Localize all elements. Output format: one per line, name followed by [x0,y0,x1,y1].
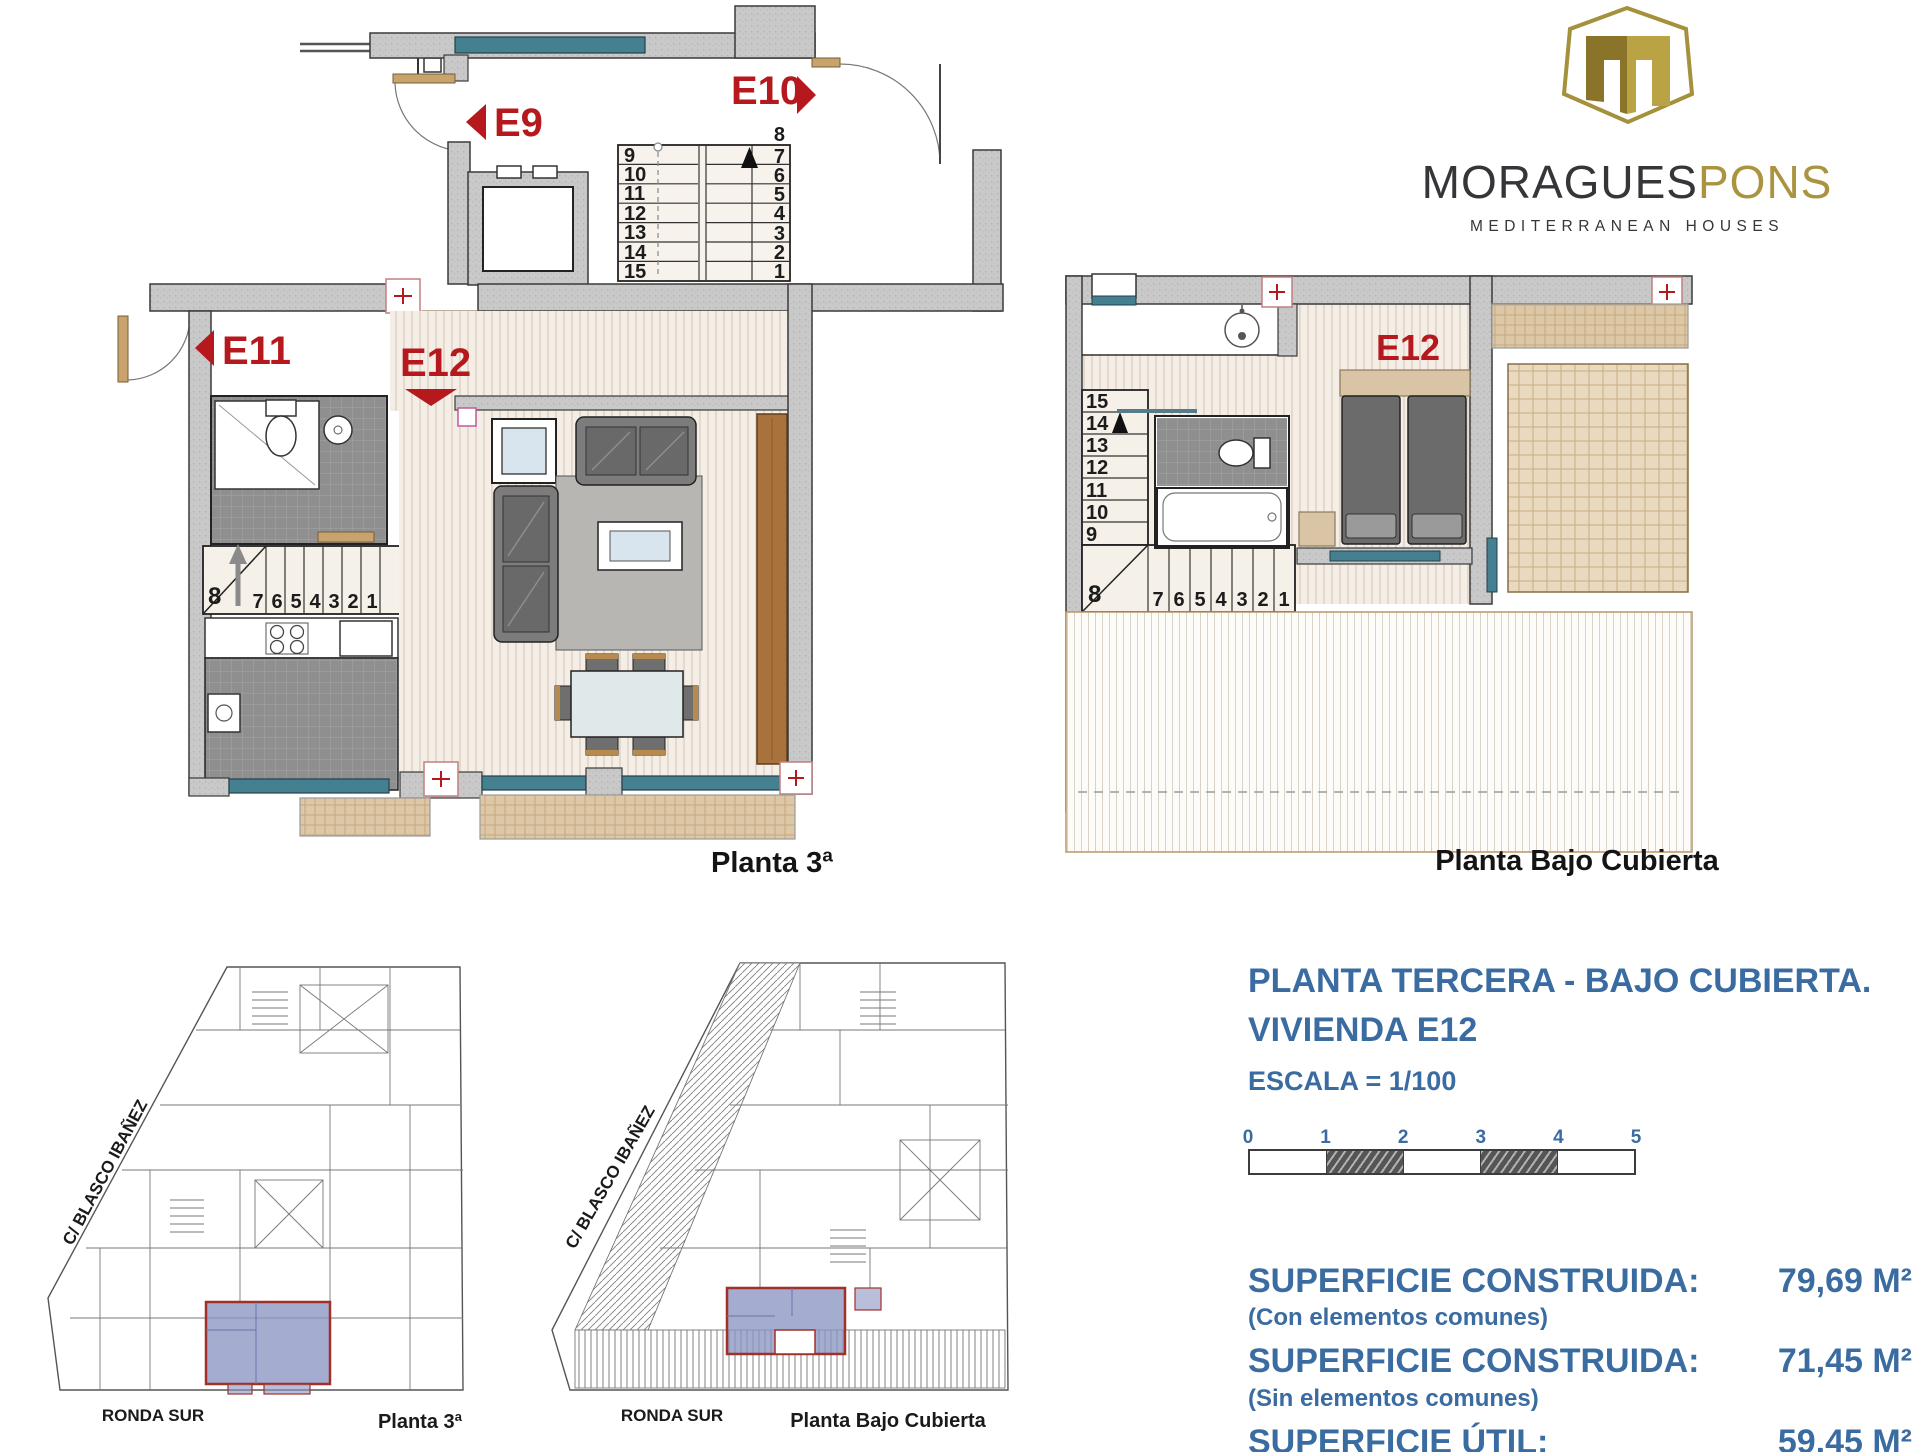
stair-step-number: 15 [624,261,646,283]
stair-step-number: 1 [774,261,785,283]
plan-sheet: 9 10 11 12 13 14 15 16 8 7 6 5 4 3 2 1 [0,0,1920,1452]
brand-tagline: MEDITERRANEAN HOUSES [1470,218,1784,235]
floorplan-planta3: 9 10 11 12 13 14 15 16 8 7 6 5 4 3 2 1 [0,0,1040,890]
siteplan-caption: Planta Bajo Cubierta [790,1410,986,1432]
area-row-constructed-net: SUPERFICIE CONSTRUIDA: 71,45 M² [1248,1339,1912,1383]
highlighted-unit [206,1302,330,1394]
info-scale-text: ESCALA = 1/100 [1248,1066,1912,1097]
e9-arrow-icon [466,104,486,140]
wall-cross-symbol [1652,277,1682,307]
shower-screen [1117,409,1197,413]
area-row-constructed-gross: SUPERFICIE CONSTRUIDA: 79,69 M² [1248,1259,1912,1303]
stair-step-number: 14 [1086,413,1109,435]
stair-step-number: 4 [1215,589,1227,611]
scale-segment-hatched [1480,1151,1557,1173]
upper-stair-flight: 15 14 13 12 11 10 9 [1082,390,1148,546]
scale-segment [1250,1151,1326,1173]
unit-label-e12: E12 [400,341,471,385]
scale-tick: 0 [1243,1127,1254,1149]
window-teal [229,779,389,793]
area-value: 71,45 M² [1778,1339,1912,1383]
upper-terrace [1492,304,1688,348]
unit-label-e11: E11 [222,329,291,373]
kitchen-sink [208,694,240,732]
area-value: 59,45 M² [1778,1420,1912,1452]
scale-tick: 2 [1398,1127,1409,1149]
brand-logo: MORAGUESPONS MEDITERRANEAN HOUSES [1390,2,1910,246]
stair-step-number: 7 [252,591,263,613]
stair-step-number: 5 [290,591,301,613]
plan-bc-caption: Planta Bajo Cubierta [1435,845,1719,877]
washbasin [1225,305,1259,347]
scale-segment-hatched [1326,1151,1403,1173]
stair-step-number: 6 [271,591,282,613]
fridge [340,621,392,656]
stair-step-number: 6 [1173,589,1184,611]
stair-step-number: 13 [624,222,646,244]
scale-tick: 4 [1553,1127,1564,1149]
info-title-line2: VIVIENDA E12 [1248,1011,1912,1050]
scale-tick: 5 [1631,1127,1642,1149]
headboard-shelf [1340,370,1470,396]
stair-step-number: 13 [1086,435,1108,457]
side-terrace [1508,364,1688,592]
info-block: PLANTA TERCERA - BAJO CUBIERTA. VIVIENDA… [1248,962,1912,1452]
stair-step-number: 5 [1194,589,1205,611]
coffee-table [598,522,682,570]
stair-step-number: 4 [309,591,321,613]
stair-step-number: 1 [366,591,377,613]
stair-step-number: 2 [347,591,358,613]
siteplan-caption: Planta 3ª [378,1411,463,1433]
window-teal [482,776,586,790]
terrace-door-teal [1487,538,1497,592]
wall-cross-symbol [1262,277,1292,307]
area-note: (Con elementos comunes) [1248,1303,1912,1333]
logo-mark-icon [1564,8,1692,122]
stair-step-number: 15 [1086,391,1108,413]
balcony [300,798,430,836]
stair-step-number: 12 [1086,457,1108,479]
scale-ticks: 0 1 2 3 4 5 [1248,1127,1636,1149]
window-teal [1092,296,1136,305]
stair-step-number: 11 [624,183,645,205]
wall-cross-symbol [424,762,458,796]
stair-step-number: 4 [774,203,786,225]
siteplan-planta3: C/ BLASCO IBAÑEZ RONDA SUR Planta 3ª [20,950,530,1440]
stair-step-number: 3 [328,591,339,613]
brand-primary: MORAGUES [1422,156,1698,208]
interior-wall [455,396,789,410]
tv-cabinet [492,419,556,483]
window-teal [622,776,788,790]
graphic-scale-bar: 0 1 2 3 4 5 [1248,1127,1636,1179]
window-teal [455,37,645,53]
bathroom [211,396,387,544]
e10-door [812,58,1001,311]
roof-terrace [1066,612,1692,852]
e11-door [118,316,190,382]
stair-step-number: 8 [208,583,221,610]
elevator [468,166,588,285]
brand-secondary: PONS [1698,156,1832,208]
street-label-bottom: RONDA SUR [621,1406,723,1425]
wall-cross-symbol [780,762,812,794]
toilet [1219,438,1270,468]
balcony [480,795,795,839]
area-label: SUPERFICIE CONSTRUIDA: [1248,1259,1699,1303]
apartment-right-wall [788,284,812,794]
window-teal [1330,551,1440,561]
area-label: SUPERFICIE ÚTIL: [1248,1420,1548,1452]
washbasin [324,416,352,444]
sofa-top [576,417,696,485]
siteplan-bajo-cubierta: C/ BLASCO IBAÑEZ RONDA SUR Planta Bajo C… [530,950,1030,1440]
area-value: 79,69 M² [1778,1259,1912,1303]
stair-step-number: 10 [1086,502,1108,524]
stair-step-number: 2 [1257,589,1268,611]
scale-segment [1403,1151,1480,1173]
unit-label-e12: E12 [1376,327,1440,368]
info-title-line1: PLANTA TERCERA - BAJO CUBIERTA. [1248,962,1912,1001]
unit-label-e9: E9 [494,101,543,145]
unit-staircase: 8 7 6 5 4 3 2 1 [203,544,400,614]
scale-bar-segments [1248,1149,1636,1175]
scale-tick: 1 [1320,1127,1331,1149]
bathroom-door-sill [318,532,374,542]
area-row-useful: SUPERFICIE ÚTIL: 59,45 M² [1248,1420,1912,1452]
kitchen [205,618,398,790]
scale-tick: 3 [1476,1127,1487,1149]
unit-label-e10: E10 [731,69,802,113]
nightstand [1299,512,1335,546]
wall-cross-symbol [386,279,420,313]
communal-staircase: 9 10 11 12 13 14 15 16 8 7 6 5 4 3 2 1 [618,124,790,305]
stair-step-number: 1 [1278,589,1289,611]
e9-door [393,74,470,284]
stair-step-number: 11 [1086,480,1107,502]
brand-name: MORAGUESPONS [1422,156,1833,208]
pillow [1346,514,1396,538]
lower-stair-flight: 8 7 6 5 4 3 2 1 [1082,545,1295,612]
scale-segment [1557,1151,1634,1173]
stair-step-number: 8 [1088,581,1101,608]
e10-arrow-icon [797,76,816,114]
bathtub [1157,488,1287,546]
pillow [1412,514,1462,538]
stair-step-number: 9 [1086,524,1097,546]
corridor-wall [150,279,1003,313]
wood-bench [757,414,787,764]
stair-step-number: 8 [774,124,785,146]
sofa-left [494,486,558,642]
utility-symbol [458,408,476,426]
area-note: (Sin elementos comunes) [1248,1384,1912,1414]
dining-table [571,671,683,737]
stove [266,623,308,654]
stair-step-number: 3 [1236,589,1247,611]
area-label: SUPERFICIE CONSTRUIDA: [1248,1339,1699,1383]
stair-step-number: 7 [1152,589,1163,611]
plan3-caption: Planta 3ª [711,847,833,879]
street-label-bottom: RONDA SUR [102,1406,204,1425]
toilet [266,400,296,456]
